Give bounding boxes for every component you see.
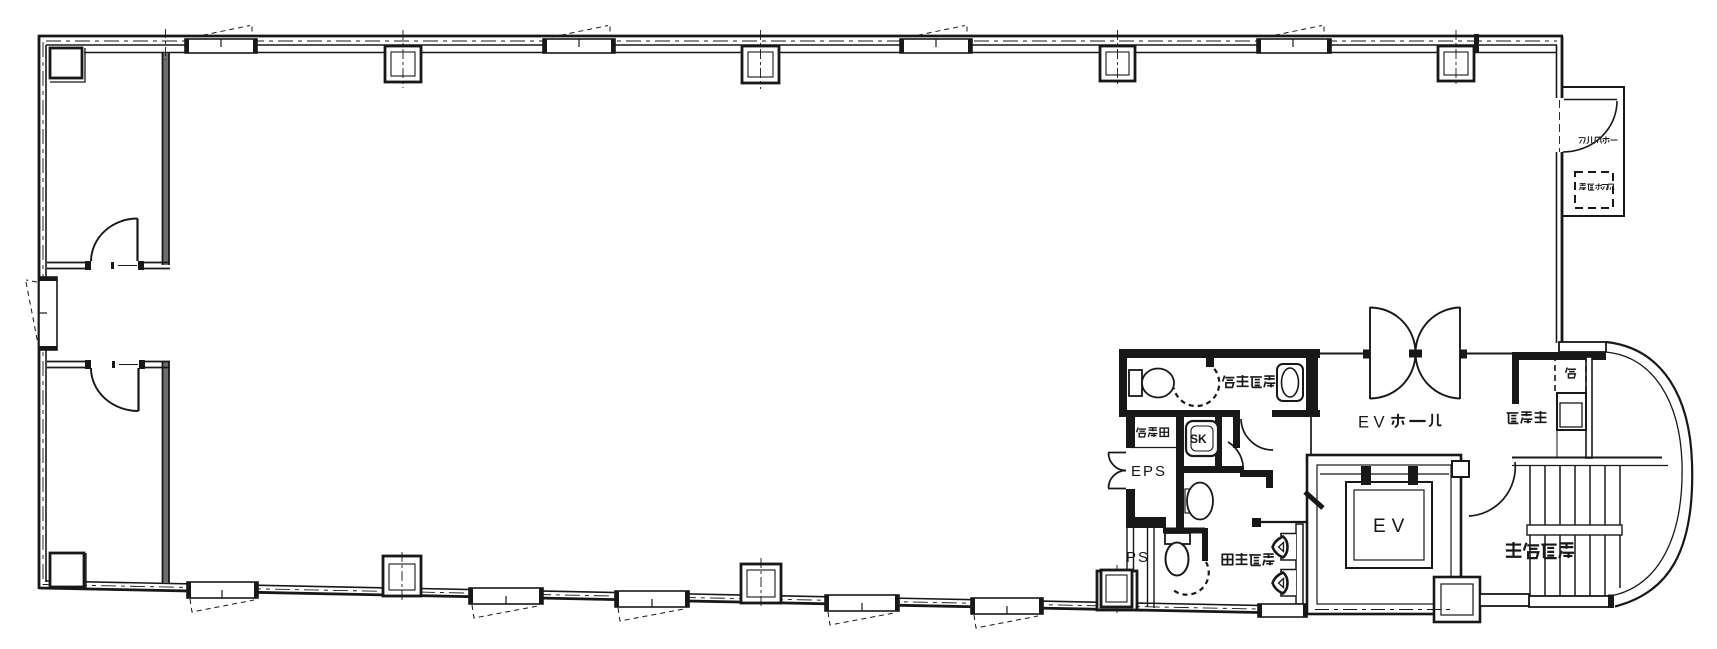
svg-text:EV: EV (1358, 414, 1389, 432)
svg-text:PS: PS (1126, 549, 1150, 566)
svg-text:SK: SK (1190, 432, 1207, 446)
svg-text:EV: EV (1373, 516, 1410, 537)
svg-text:EPS: EPS (1131, 463, 1167, 480)
